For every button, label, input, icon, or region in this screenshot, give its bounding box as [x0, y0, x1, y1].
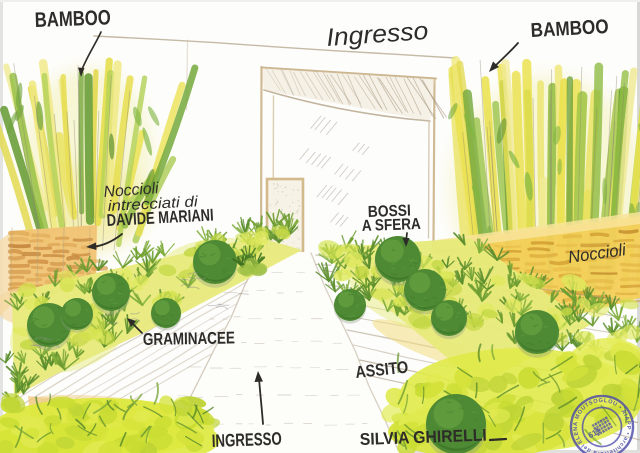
svg-text:GRAMINACEE: GRAMINACEE [143, 328, 235, 349]
svg-text:BAMBOO: BAMBOO [34, 6, 111, 32]
svg-text:INGRESSO: INGRESSO [211, 429, 282, 451]
svg-text:A SFERA: A SFERA [362, 216, 422, 235]
svg-text:BAMBOO: BAMBOO [530, 16, 609, 42]
